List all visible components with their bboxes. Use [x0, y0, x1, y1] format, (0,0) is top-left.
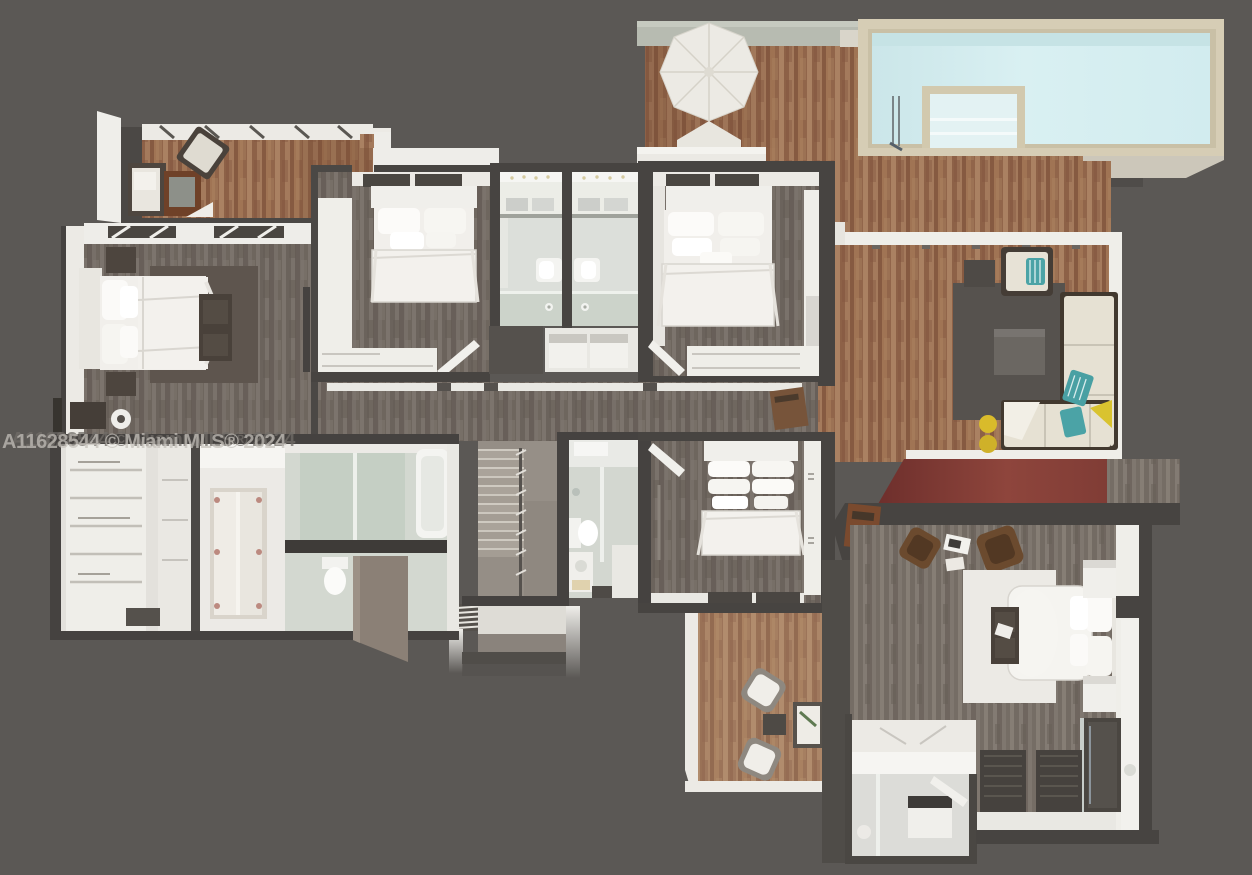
svg-text:A11628544 © Miami MLS® 2024: A11628544 © Miami MLS® 2024	[2, 431, 287, 453]
